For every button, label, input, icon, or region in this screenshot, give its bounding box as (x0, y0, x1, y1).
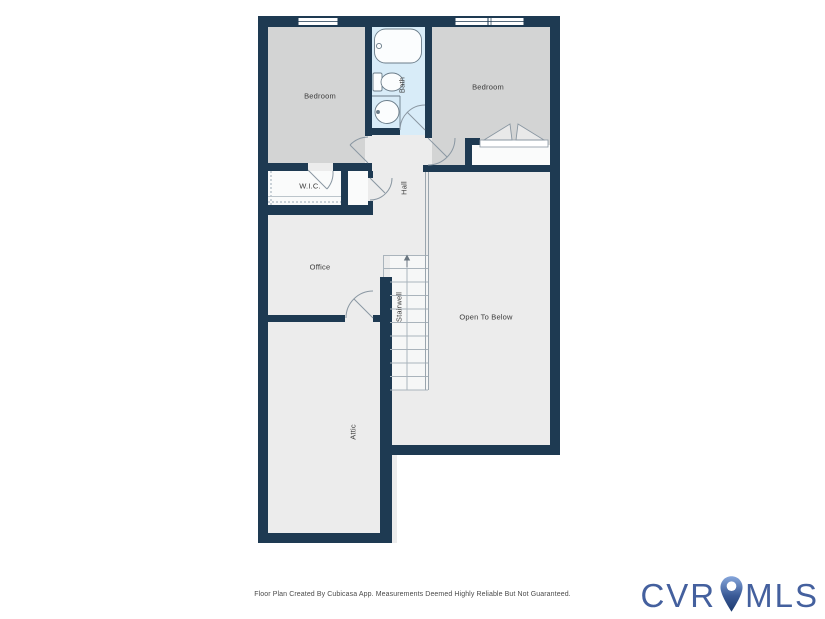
logo-suffix: MLS (745, 579, 819, 612)
logo: CVR MLS (640, 575, 819, 615)
map-pin-icon (719, 575, 744, 613)
room-label-wic: W.I.C. (299, 182, 321, 191)
room-label-hall: Hall (400, 181, 409, 195)
floor-plan-page: Bedroom Bath Bedroom W.I.C. Hall Office … (0, 0, 825, 619)
room-label-open-to-below: Open To Below (459, 313, 512, 322)
room-label-office: Office (310, 263, 331, 272)
room-hall-closet (348, 171, 368, 205)
room-label-attic: Attic (349, 424, 358, 440)
outside-area (397, 455, 560, 543)
logo-prefix: CVR (640, 579, 716, 612)
room-bedroom-closet (472, 145, 550, 165)
room-label-stairwell: Stairwell (395, 292, 404, 322)
window-icon (455, 18, 524, 26)
window-icon (298, 18, 338, 26)
room-label-bath: Bath (398, 77, 407, 93)
room-label-bedroom-right: Bedroom (472, 83, 504, 92)
floor-plan: Bedroom Bath Bedroom W.I.C. Hall Office … (258, 16, 560, 543)
bathtub-faucet-icon (376, 43, 381, 48)
room-label-bedroom-left: Bedroom (304, 92, 336, 101)
